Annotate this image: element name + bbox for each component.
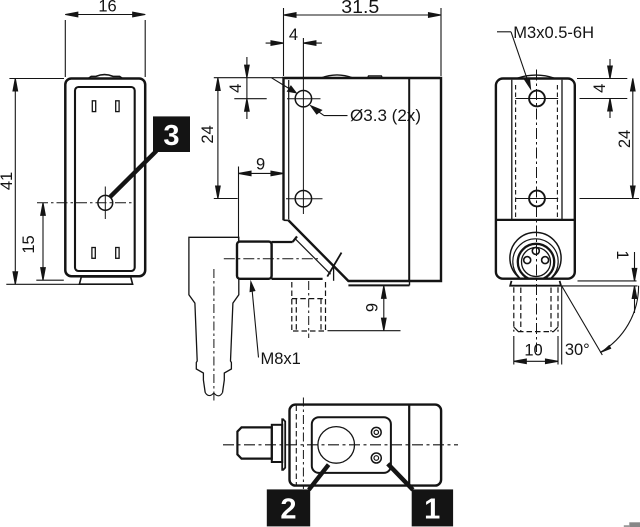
- svg-text:9: 9: [256, 156, 265, 174]
- svg-text:31.5: 31.5: [341, 0, 379, 17]
- svg-text:4: 4: [227, 84, 245, 93]
- svg-text:1: 1: [424, 494, 440, 526]
- svg-text:41: 41: [0, 172, 16, 190]
- svg-text:24: 24: [616, 130, 634, 148]
- svg-text:1: 1: [613, 250, 631, 259]
- svg-text:2: 2: [280, 494, 296, 526]
- svg-text:10: 10: [524, 342, 542, 360]
- svg-text:30°: 30°: [565, 341, 590, 359]
- svg-text:3: 3: [163, 120, 179, 152]
- svg-text:16: 16: [98, 0, 116, 16]
- svg-text:9: 9: [364, 303, 382, 312]
- svg-text:Ø3.3 (2x): Ø3.3 (2x): [350, 107, 421, 125]
- svg-text:24: 24: [199, 125, 217, 143]
- svg-text:15: 15: [20, 235, 38, 253]
- svg-text:4: 4: [289, 26, 298, 44]
- svg-text:M8x1: M8x1: [261, 350, 301, 368]
- svg-text:M3x0.5-6H: M3x0.5-6H: [513, 24, 594, 42]
- svg-text:4: 4: [591, 84, 609, 93]
